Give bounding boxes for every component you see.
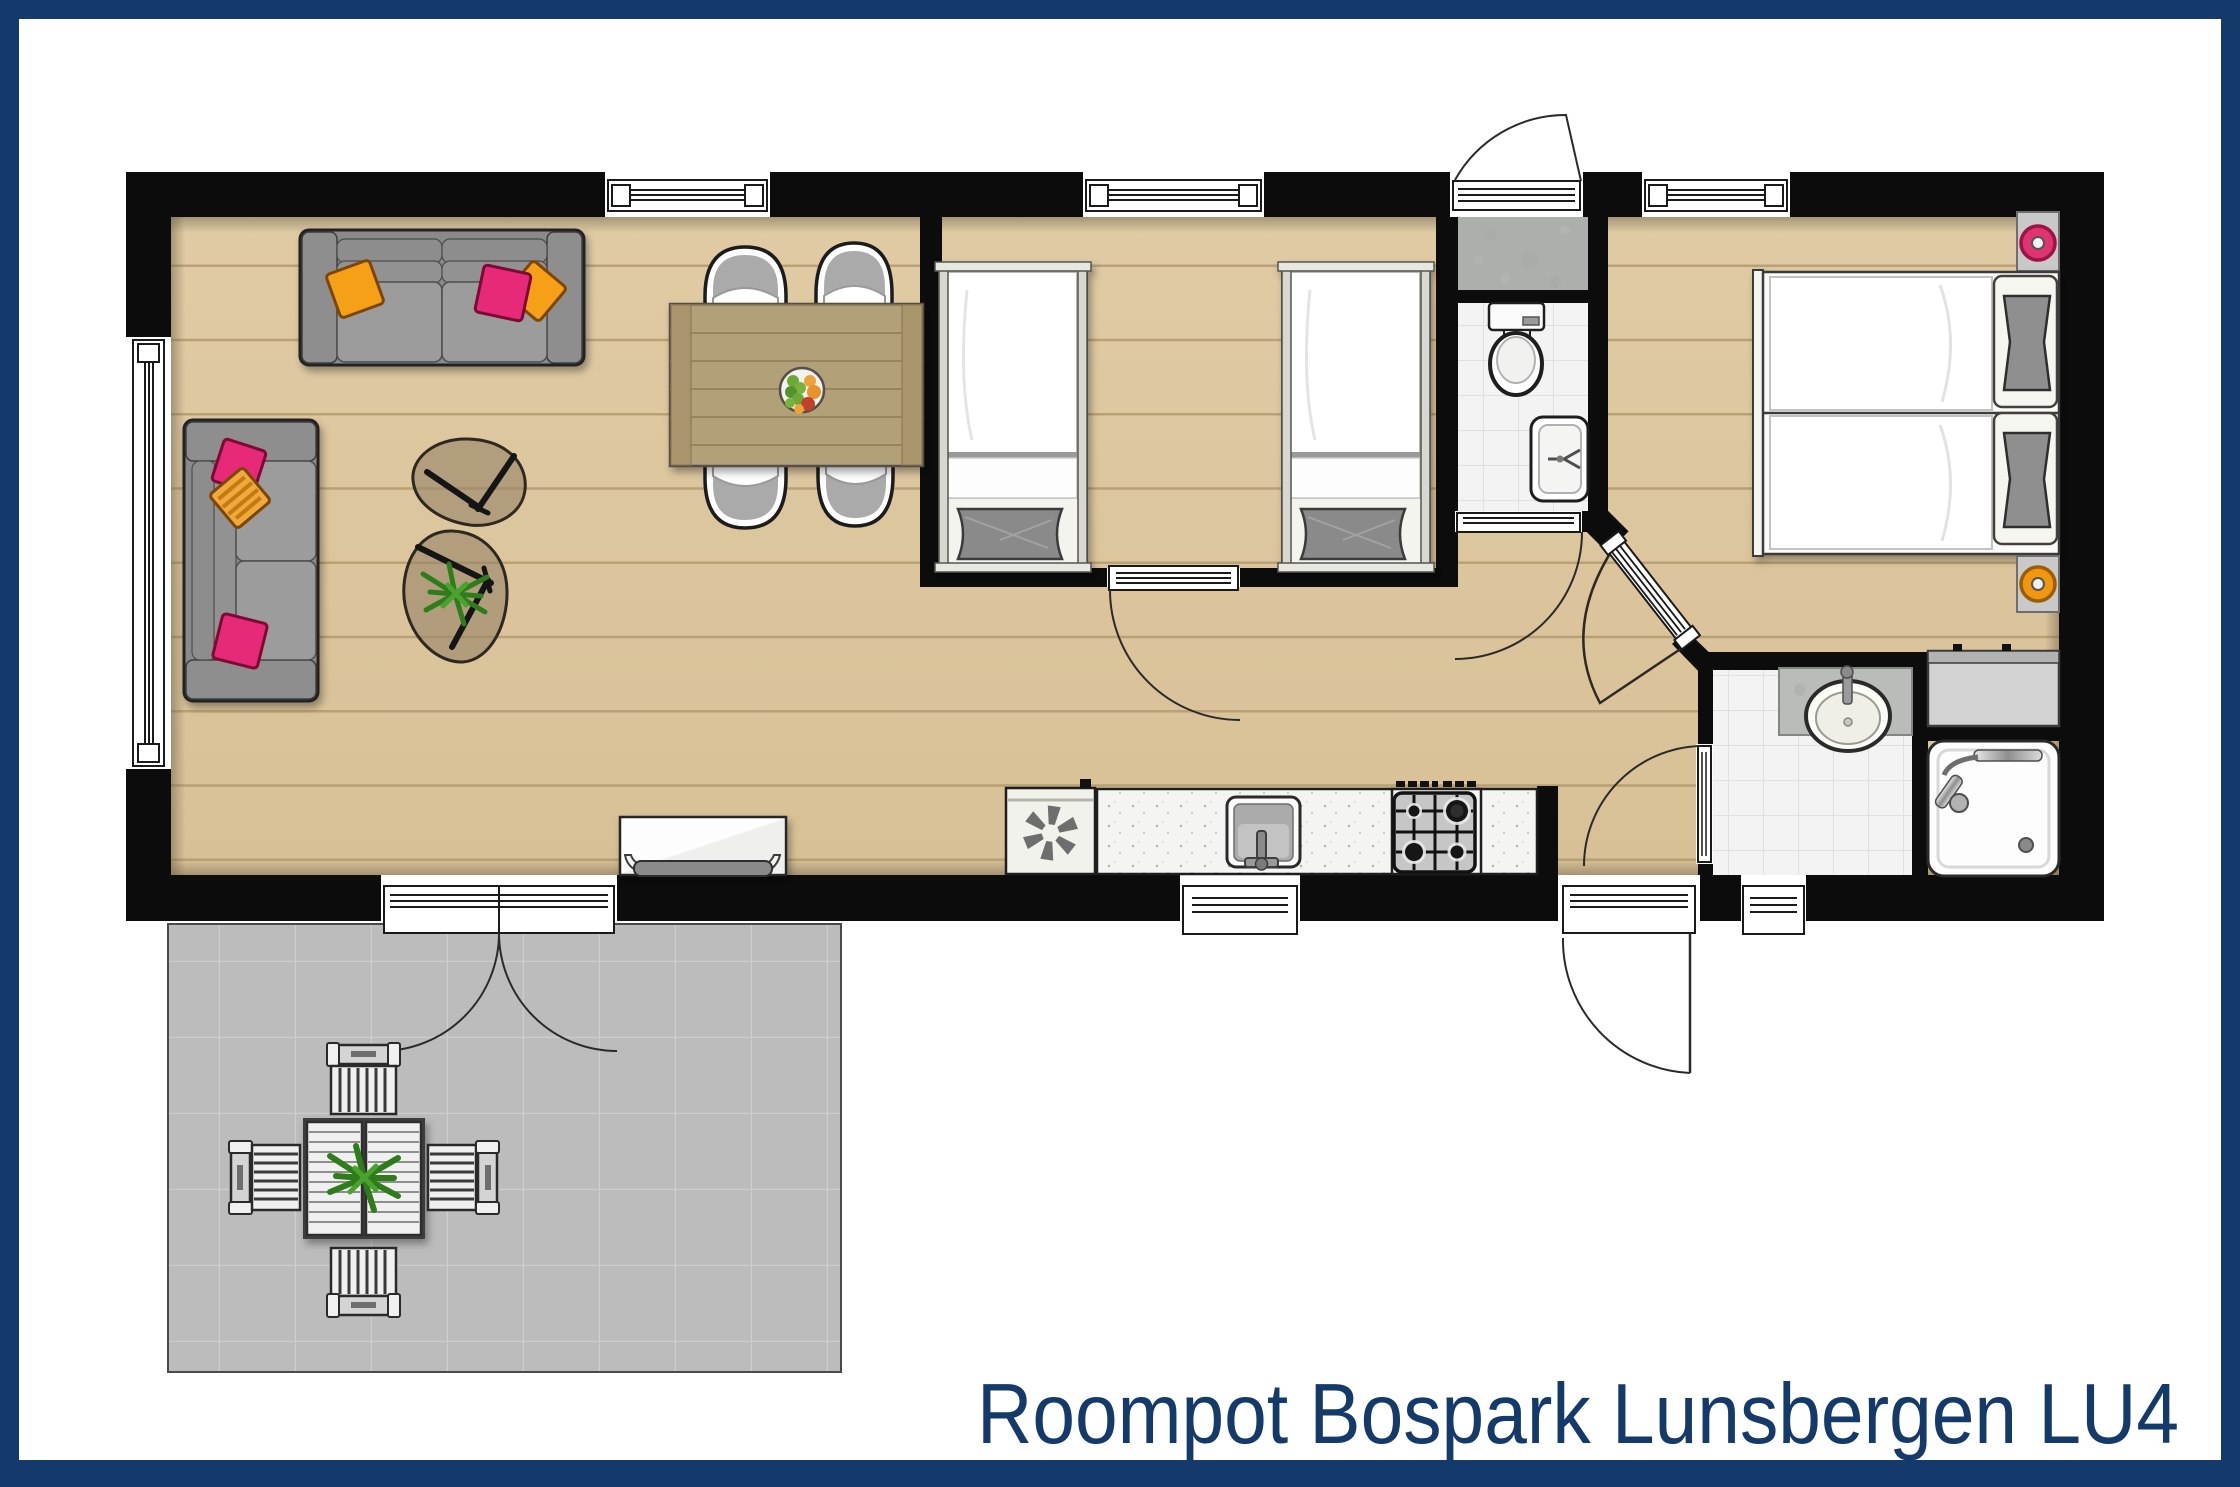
svg-text:Roompot Bospark Lunsbergen LU4: Roompot Bospark Lunsbergen LU4 [977, 1367, 2179, 1462]
